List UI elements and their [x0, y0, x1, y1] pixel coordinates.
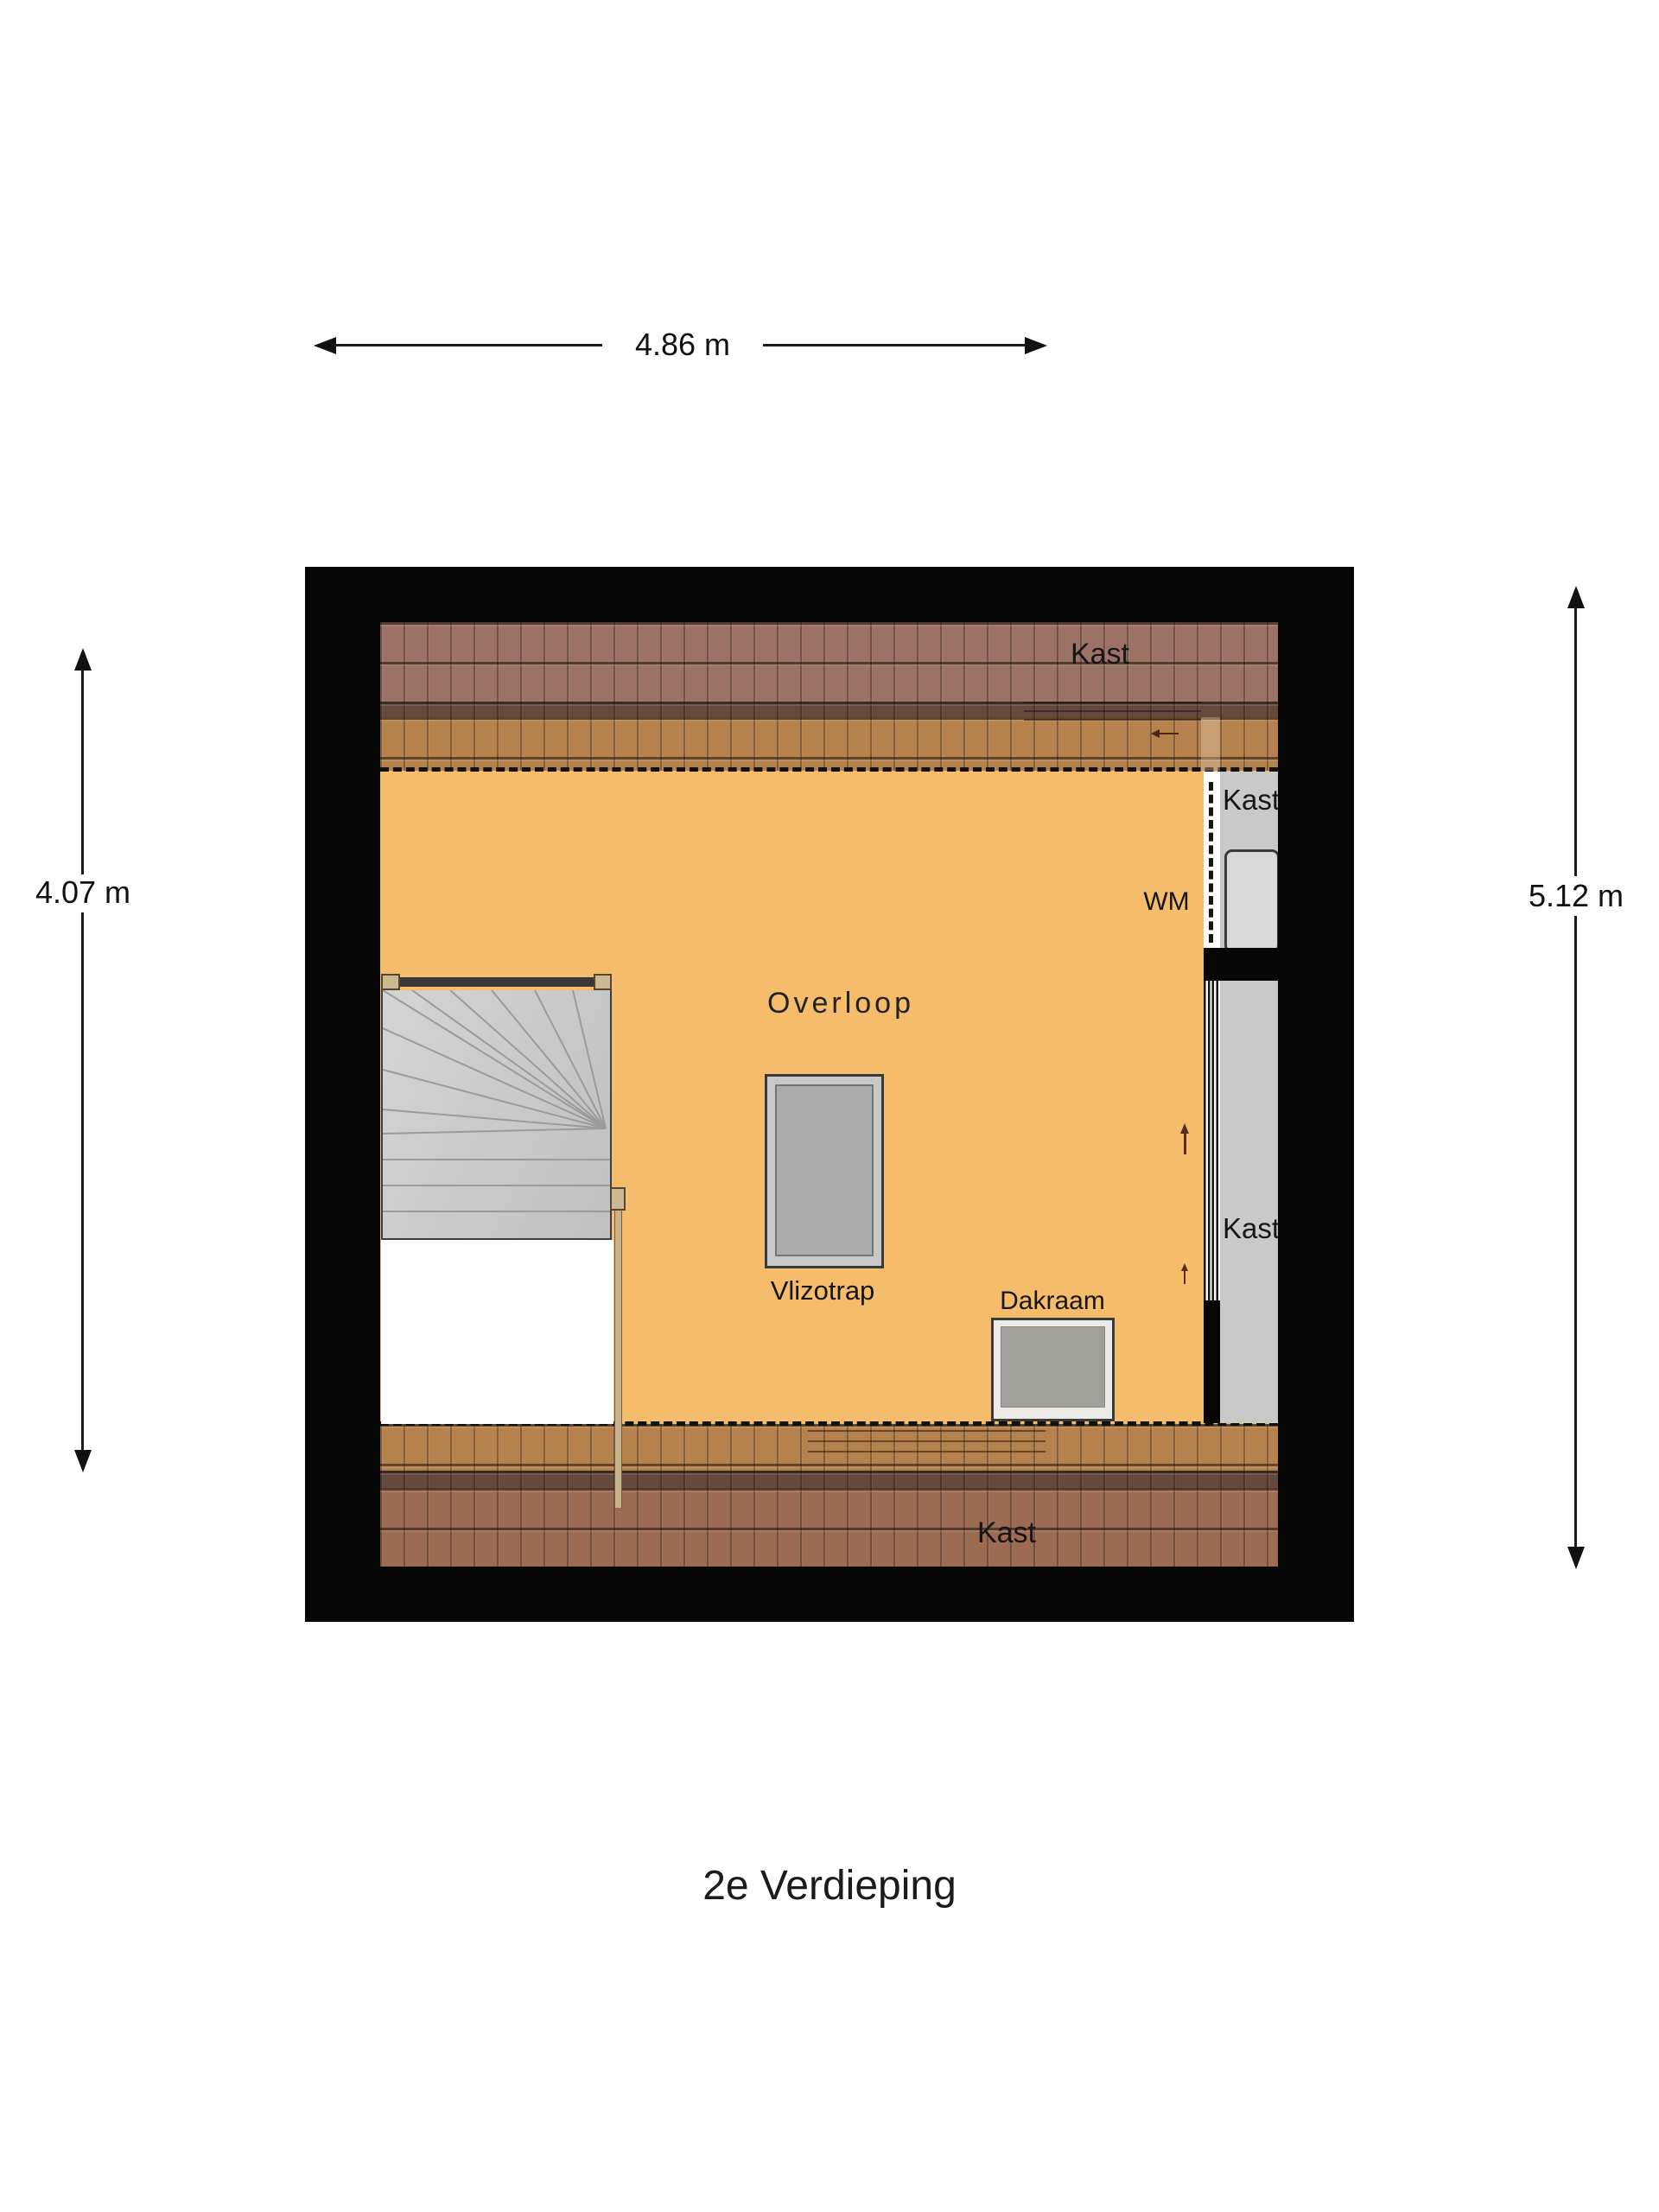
- dim-line: [334, 344, 602, 346]
- handrail-line: [614, 1211, 622, 1508]
- dim-line: [1574, 916, 1577, 1547]
- dormer-lines-top: [1024, 702, 1201, 703]
- dakraam-glass: [1001, 1326, 1105, 1408]
- direction-arrow-up-2: [1179, 1263, 1190, 1284]
- closet-cabinet: [1224, 849, 1278, 948]
- closet-upper-right: Kast: [1220, 772, 1278, 948]
- stair-winder-lines: [383, 990, 610, 1236]
- room-label-overloop: Overloop: [711, 987, 970, 1020]
- door-opening-dashed-line: [1209, 782, 1213, 943]
- vlizotrap-hatch-inner: [775, 1084, 874, 1256]
- dim-arrowhead-left-icon: [314, 337, 336, 354]
- dim-line: [81, 912, 84, 1452]
- dormer-lines-top: [1024, 710, 1201, 712]
- closet-bottom-label: Kast: [920, 1516, 1093, 1550]
- floor-plan-page: 4.86 m 4.07 m 5.12 m: [0, 0, 1659, 2212]
- dim-line: [763, 344, 1027, 346]
- dim-left-text: 4.07 m: [35, 874, 130, 911]
- dim-top-text: 4.86 m: [635, 327, 730, 363]
- dormer-lines-bottom: [808, 1430, 1046, 1432]
- wall-segment-low-right: [1204, 1300, 1220, 1423]
- dim-right-value: 5.12 m: [1507, 878, 1645, 914]
- dormer-lines-bottom: [808, 1451, 1046, 1452]
- roof-tiles-light: [380, 717, 1278, 771]
- dim-arrowhead-right-icon: [1025, 337, 1047, 354]
- closet-top-label: Kast: [1014, 638, 1186, 671]
- roof-edge-dashed-top: [380, 767, 1278, 772]
- stair-rail-cap-left: [381, 974, 400, 990]
- dormer-lines-top: [1024, 719, 1201, 721]
- staircase: [381, 990, 612, 1240]
- roof-ridge-stripe: [380, 1471, 1278, 1488]
- wall-segment-mid-right: [1204, 948, 1278, 981]
- newel-post: [610, 1187, 626, 1211]
- stair-rail-cap-right: [594, 974, 612, 990]
- dakraam-label: Dakraam: [949, 1287, 1156, 1316]
- roof-light-strip: [1201, 717, 1220, 771]
- dim-right-text: 5.12 m: [1529, 878, 1624, 914]
- dim-line: [1574, 607, 1577, 876]
- direction-arrow-up-1: [1178, 1123, 1192, 1154]
- vlizotrap-label: Vlizotrap: [719, 1275, 926, 1306]
- wm-label: WM: [1134, 887, 1199, 917]
- roof-band-bottom: [380, 1424, 1278, 1567]
- louver-door: [1204, 981, 1220, 1300]
- dakraam-window: [991, 1318, 1115, 1421]
- dim-line: [81, 669, 84, 876]
- closet-upper-right-label: Kast: [1223, 784, 1278, 817]
- dormer-arrow-left-icon: [1151, 728, 1179, 739]
- roof-tiles-dark: [380, 1488, 1278, 1567]
- vlizotrap-hatch: [765, 1074, 884, 1268]
- dormer-lines-bottom: [808, 1440, 1046, 1442]
- dim-arrowhead-up-icon: [1567, 586, 1585, 608]
- closet-lower-right: Kast: [1220, 981, 1278, 1423]
- dim-left-value: 4.07 m: [14, 874, 152, 911]
- dim-arrowhead-down-icon: [1567, 1547, 1585, 1569]
- roof-ridge-stripe: [380, 702, 1278, 717]
- dim-arrowhead-up-icon: [74, 648, 92, 671]
- page-title: 2e Verdieping: [570, 1862, 1089, 1910]
- dim-top-value: 4.86 m: [602, 327, 763, 363]
- dim-arrowhead-down-icon: [74, 1450, 92, 1472]
- closet-lower-right-label: Kast: [1223, 1212, 1278, 1245]
- stair-void: [381, 1240, 613, 1424]
- stair-rail: [382, 977, 612, 987]
